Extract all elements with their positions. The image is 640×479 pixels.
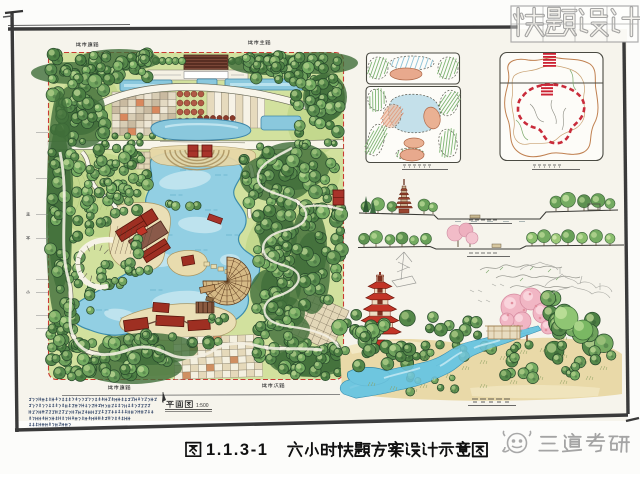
svg-text:1.1.3-1: 1.1.3-1: [206, 441, 269, 459]
svg-text:1:500: 1:500: [196, 403, 209, 409]
